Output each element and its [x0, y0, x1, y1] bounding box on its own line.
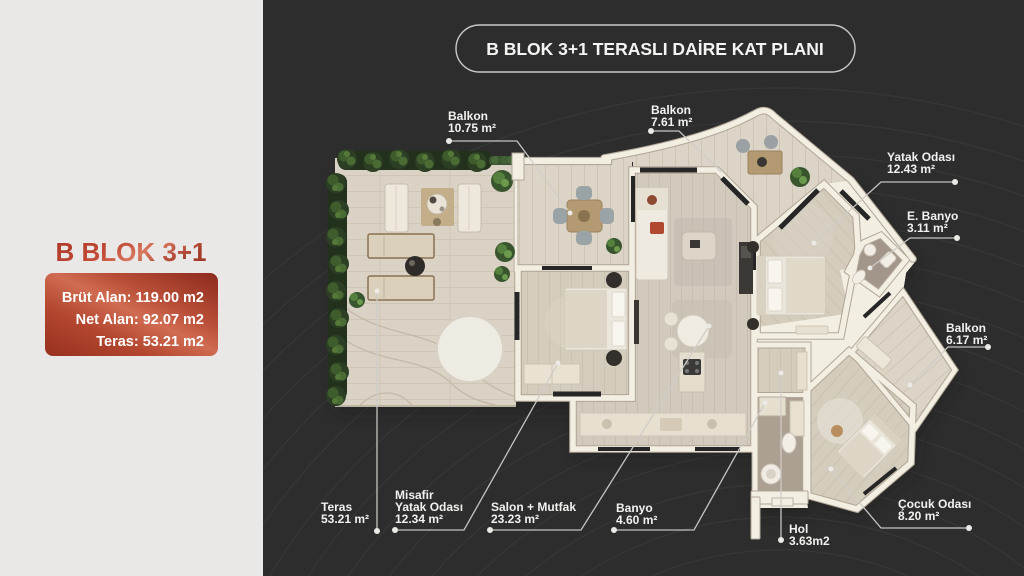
svg-text:3.11 m²: 3.11 m²: [907, 221, 948, 235]
svg-text:3.63m2: 3.63m2: [789, 534, 830, 548]
svg-text:Brüt Alan: 119.00 m2: Brüt Alan: 119.00 m2: [62, 290, 204, 306]
svg-text:Net Alan: 92.07 m2: Net Alan: 92.07 m2: [76, 312, 204, 328]
svg-text:53.21 m²: 53.21 m²: [321, 512, 369, 526]
svg-text:4.60 m²: 4.60 m²: [616, 513, 657, 527]
svg-text:12.34 m²: 12.34 m²: [395, 512, 443, 526]
svg-text:B BLOK 3+1: B BLOK 3+1: [56, 237, 207, 267]
svg-text:12.43 m²: 12.43 m²: [887, 162, 935, 176]
svg-text:10.75 m²: 10.75 m²: [448, 121, 496, 135]
svg-text:7.61 m²: 7.61 m²: [651, 115, 692, 129]
svg-text:B BLOK 3+1 TERASLI DAİRE KAT P: B BLOK 3+1 TERASLI DAİRE KAT PLANI: [486, 39, 824, 59]
svg-text:6.17 m²: 6.17 m²: [946, 333, 987, 347]
svg-text:8.20 m²: 8.20 m²: [898, 509, 939, 523]
svg-text:23.23 m²: 23.23 m²: [491, 512, 539, 526]
svg-text:Teras: 53.21 m2: Teras: 53.21 m2: [96, 334, 204, 350]
